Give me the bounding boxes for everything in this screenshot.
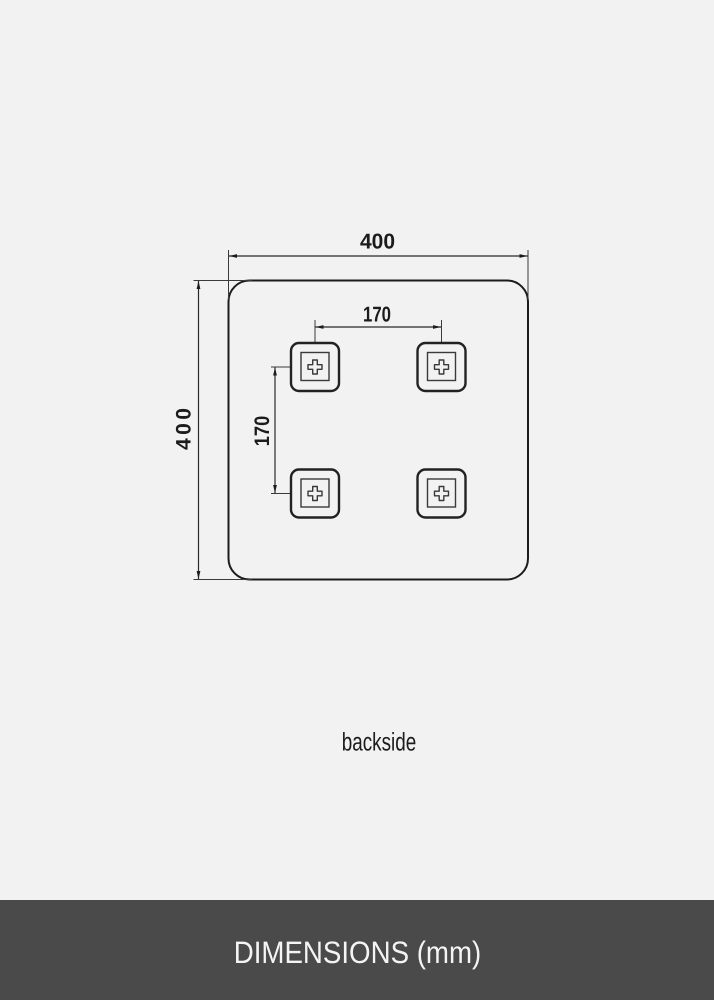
- svg-text:400: 400: [173, 408, 196, 450]
- svg-text:backside: backside: [342, 729, 417, 757]
- svg-text:170: 170: [251, 416, 274, 447]
- svg-text:170: 170: [363, 303, 391, 327]
- svg-text:400: 400: [360, 230, 395, 254]
- svg-text:DIMENSIONS (mm): DIMENSIONS (mm): [234, 935, 482, 970]
